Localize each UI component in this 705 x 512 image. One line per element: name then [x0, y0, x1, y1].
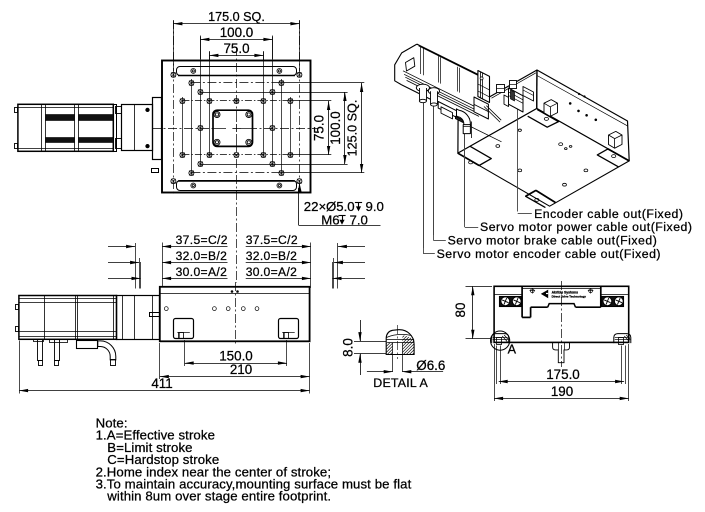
svg-text:Encoder cable out(Fixed): Encoder cable out(Fixed) [534, 207, 683, 221]
svg-text:100.0: 100.0 [328, 111, 343, 145]
svg-text:75.0: 75.0 [223, 41, 249, 56]
svg-text:75.0: 75.0 [312, 115, 327, 141]
svg-text:100.0: 100.0 [220, 25, 254, 40]
svg-text:32.0=B/2: 32.0=B/2 [176, 249, 228, 263]
svg-text:Direct Drive Technology: Direct Drive Technology [552, 295, 587, 299]
svg-text:9.0: 9.0 [366, 199, 384, 214]
svg-text:Servo motor brake cable out(Fi: Servo motor brake cable out(Fixed) [448, 234, 658, 248]
svg-text:30.0=A/2: 30.0=A/2 [246, 265, 298, 279]
svg-text:A: A [508, 343, 517, 357]
svg-text:175.0: 175.0 [546, 367, 580, 382]
svg-text:411: 411 [151, 376, 172, 391]
svg-text:8.0: 8.0 [340, 338, 355, 357]
svg-text:7.0: 7.0 [350, 213, 368, 228]
svg-text:within 8um over stage entire f: within 8um over stage entire footprint. [106, 489, 331, 504]
svg-text:150.0: 150.0 [219, 348, 253, 363]
svg-text:M6: M6 [321, 213, 339, 228]
svg-text:30.0=A/2: 30.0=A/2 [176, 265, 228, 279]
svg-text:175.0 SQ.: 175.0 SQ. [208, 10, 265, 24]
svg-text:210: 210 [230, 362, 252, 377]
svg-text:80: 80 [453, 303, 468, 318]
svg-text:37.5=C/2: 37.5=C/2 [246, 233, 298, 247]
svg-text:37.5=C/2: 37.5=C/2 [176, 233, 228, 247]
svg-text:Servo motor power cable out(Fi: Servo motor power cable out(Fixed) [480, 220, 692, 234]
svg-text:Ø6.6: Ø6.6 [416, 358, 445, 373]
svg-text:32.0=B/2: 32.0=B/2 [246, 249, 298, 263]
svg-text:125.0 SQ.: 125.0 SQ. [346, 100, 360, 157]
svg-text:190: 190 [551, 384, 573, 399]
svg-text:Servo motor encoder cable out(: Servo motor encoder cable out(Fixed) [437, 247, 661, 261]
svg-text:DETAIL A: DETAIL A [373, 376, 428, 390]
